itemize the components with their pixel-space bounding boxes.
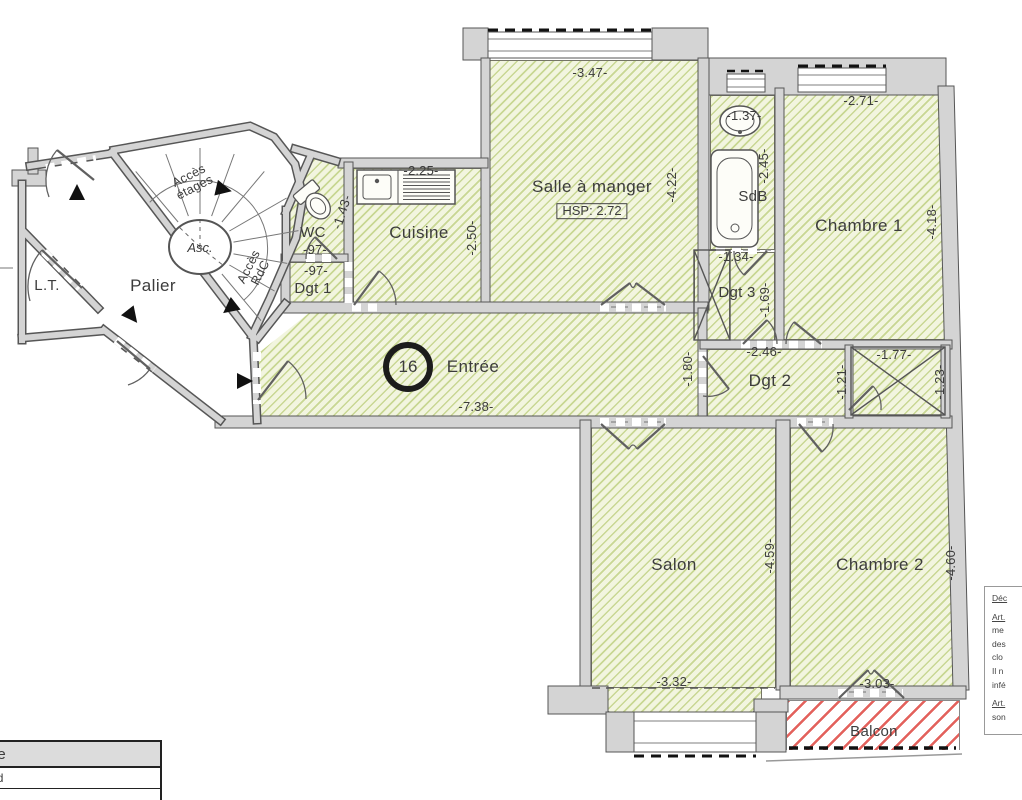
note-line: infé <box>992 679 1022 693</box>
wall <box>606 712 636 752</box>
dim-dgt3-width: -1.34- <box>718 250 753 264</box>
wall <box>776 420 790 690</box>
dim-salon-width: -3.32- <box>656 675 691 689</box>
wall <box>754 712 786 752</box>
dim-cuisine-height: -2.50- <box>465 220 479 255</box>
note-line: Art. <box>992 697 1022 711</box>
room-label-cuisine: Cuisine <box>389 224 449 242</box>
legend-row: olafond <box>0 768 160 789</box>
dim-salon-height: -4.59- <box>763 538 777 573</box>
note-line: son <box>992 711 1022 725</box>
elevator-label: Asc. <box>187 241 212 255</box>
dim-chambre2-width: -3.03- <box>859 677 894 691</box>
arrow-palier-bottom <box>121 305 143 327</box>
arrow-palier-top <box>69 184 85 200</box>
room-label-sdb: SdB <box>738 189 767 205</box>
wall <box>652 28 708 60</box>
stairs-down-label: Accès RdC <box>235 248 275 292</box>
window-salle-a-manger <box>488 32 652 58</box>
room-label-salle-a-manger: Salle à manger <box>532 178 652 196</box>
dim-sdb-height: -2.45- <box>757 148 771 183</box>
note-line: Déc <box>992 592 1022 606</box>
legend-row: s <box>0 789 160 800</box>
wall <box>463 28 488 60</box>
stairs-up-label: Accès étages <box>169 161 216 202</box>
wall <box>580 420 591 692</box>
dim-dgt1-width: -97- <box>304 264 328 278</box>
arrow-entrance <box>237 373 253 389</box>
legend-table: gende olafond s <box>0 740 162 800</box>
wall <box>548 686 608 714</box>
dim-dgt2-right: -1.21- <box>835 364 849 399</box>
wall <box>28 148 38 174</box>
wall <box>12 170 46 186</box>
room-label-entree: Entrée <box>447 358 500 376</box>
window-sdb <box>727 74 765 92</box>
legend-header: gende <box>0 742 160 768</box>
window-salon-bay <box>634 712 756 752</box>
dim-dgt2-width: -2.46- <box>746 345 781 359</box>
dim-cuisine-width: -2.25- <box>403 164 438 178</box>
window-chambre-1 <box>798 68 886 92</box>
dim-chambre2-height: -4.60- <box>944 545 958 580</box>
dim-wc-width: -97- <box>303 243 327 257</box>
note-line: des <box>992 638 1022 652</box>
room-label-dgt-2: Dgt 2 <box>749 372 792 390</box>
room-label-dgt-3: Dgt 3 <box>718 285 755 301</box>
note-line: me <box>992 624 1022 638</box>
room-chambre-1 <box>782 90 948 340</box>
room-label-chambre-1: Chambre 1 <box>815 217 903 235</box>
ceiling-height-box: HSP: 2.72 <box>556 203 627 219</box>
arrow-stairs-down <box>218 297 240 319</box>
note-line: Art. <box>992 611 1022 625</box>
dim-entree-width: -7.38- <box>458 400 493 414</box>
floor-plan: Salle à manger HSP: 2.72 -3.47- -4.22- S… <box>0 0 1022 800</box>
room-label-wc: WC <box>300 225 326 241</box>
room-label-chambre-2: Chambre 2 <box>836 556 924 574</box>
regulation-note: Déc Art. me des clo Il n infé Art. son <box>984 586 1022 735</box>
area-label-palier: Palier <box>130 277 176 295</box>
dim-salle-height: -4.22- <box>665 167 679 202</box>
dim-sdb-width: -1.37- <box>726 109 761 123</box>
dim-salle-width: -3.47- <box>572 66 607 80</box>
dim-dgt3-height: -1.69- <box>758 282 772 317</box>
room-salon-bay <box>600 688 762 714</box>
note-line: clo <box>992 651 1022 665</box>
dim-placard-height: -1.23- <box>933 364 947 399</box>
note-line: Il n <box>992 665 1022 679</box>
lot-number: 16 <box>383 342 433 392</box>
dim-chambre1-height: -4.18- <box>925 204 939 239</box>
dim-chambre1-width: -2.71- <box>843 94 878 108</box>
room-label-dgt-1: Dgt 1 <box>294 281 331 297</box>
dim-placard-width: -1.77- <box>876 348 911 362</box>
dim-dgt2-left: -1.80- <box>681 351 695 386</box>
room-label-salon: Salon <box>651 556 696 574</box>
room-label-balcon: Balcon <box>850 724 898 740</box>
arrow-stairs-up <box>214 180 233 199</box>
area-label-lt: L.T. <box>34 278 59 294</box>
